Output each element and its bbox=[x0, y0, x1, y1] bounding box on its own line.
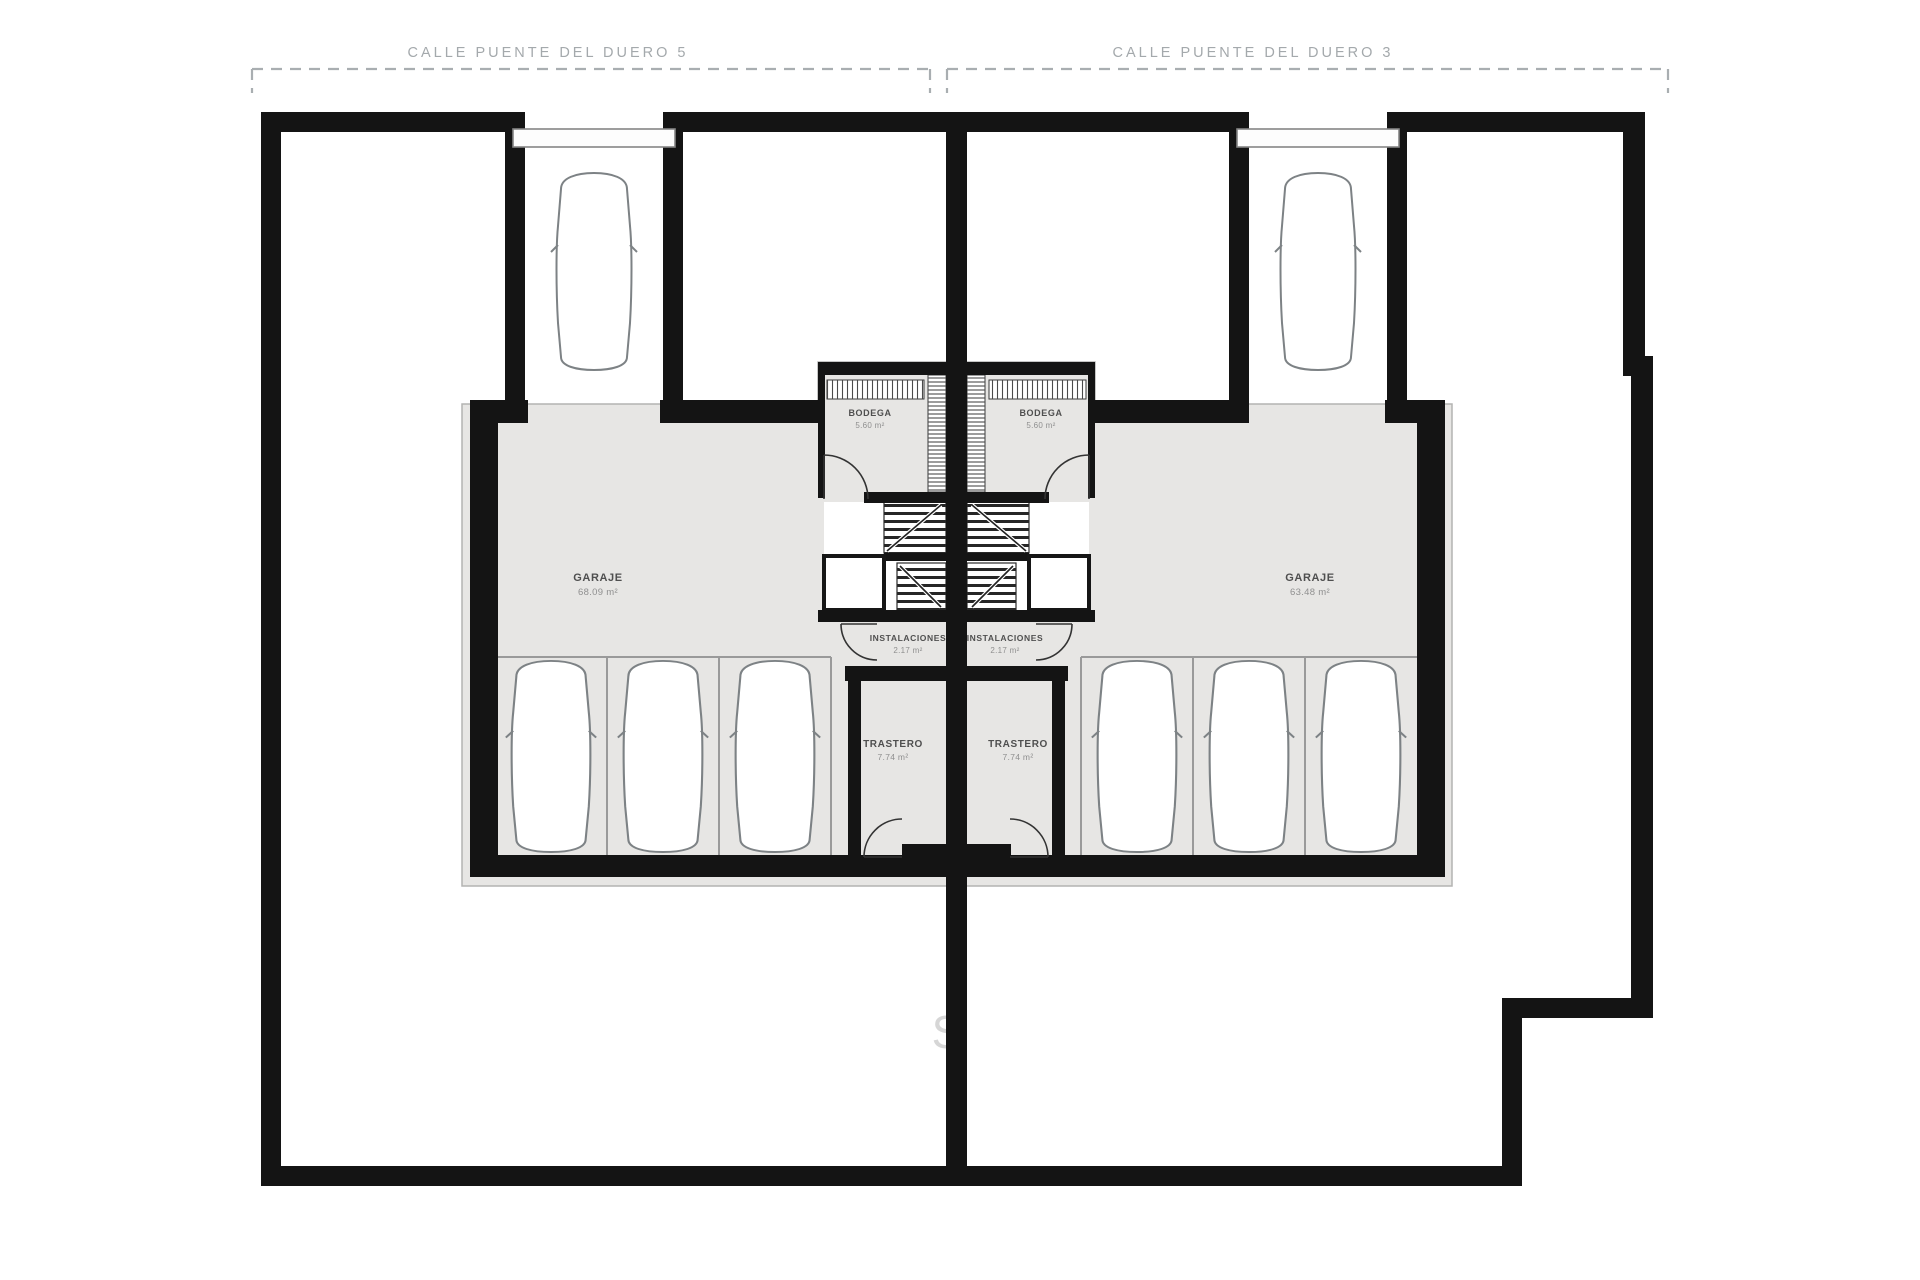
car-parking-right-3 bbox=[1316, 661, 1406, 852]
instalaciones-right-area: 2.17 m² bbox=[990, 646, 1019, 655]
core-wall-bottom bbox=[818, 610, 1095, 622]
shaft-right-hatch bbox=[967, 375, 985, 492]
stair-landing-wall-right bbox=[967, 553, 1029, 561]
bodega-right-label: BODEGA bbox=[1019, 408, 1062, 418]
car-parking-left-3 bbox=[730, 661, 820, 852]
trastero-bottom-wall-left bbox=[902, 844, 946, 857]
floor-plan-drawing: CALLE PUENTE DEL DUERO 5 CALLE PUENTE DE… bbox=[0, 0, 1920, 1280]
garage-wall-east bbox=[1417, 400, 1445, 877]
garage-wall-north-1 bbox=[470, 400, 528, 423]
core-wall-top bbox=[818, 362, 1095, 375]
garage-wall-north-2 bbox=[660, 400, 825, 423]
driveway-wall-left-b bbox=[663, 112, 683, 404]
bodega-bottom-wall-right bbox=[967, 492, 1049, 503]
trastero-bottom-wall-right bbox=[967, 844, 1011, 857]
instalaciones-bottom-wall-right bbox=[967, 666, 1068, 681]
car-parking-left-2 bbox=[618, 661, 708, 852]
instalaciones-left-area: 2.17 m² bbox=[893, 646, 922, 655]
driveway-wall-left-a bbox=[505, 112, 525, 404]
trastero-right-label: TRASTERO bbox=[988, 739, 1048, 750]
garaje-left-area: 68.09 m² bbox=[578, 587, 618, 598]
driveway-wall-right-b bbox=[1387, 112, 1407, 404]
driveway-wall-right-a bbox=[1229, 112, 1249, 404]
car-parking-right-1 bbox=[1092, 661, 1182, 852]
garaje-right-area: 63.48 m² bbox=[1290, 587, 1330, 598]
wardrobe-strip-right-hatch bbox=[989, 380, 1086, 399]
car-driveway-right bbox=[1275, 173, 1361, 370]
under-stair-room-right bbox=[1029, 556, 1089, 610]
shaft-left-hatch bbox=[928, 375, 946, 492]
garaje-right-label: GARAJE bbox=[1285, 572, 1334, 584]
bodega-left-label: BODEGA bbox=[848, 408, 891, 418]
stair-landing-wall-left bbox=[884, 553, 946, 561]
trastero-side-wall-right bbox=[1052, 681, 1065, 857]
wardrobe-strip-left-hatch bbox=[827, 380, 924, 399]
under-stair-room-left bbox=[824, 556, 884, 610]
garage-wall-south bbox=[470, 855, 1445, 877]
garaje-left-label: GARAJE bbox=[573, 572, 622, 584]
trastero-left-area: 7.74 m² bbox=[878, 752, 909, 762]
garage-wall-north-3 bbox=[1088, 400, 1249, 423]
floor-plan-page: CALLE PUENTE DEL DUERO 5 CALLE PUENTE DE… bbox=[0, 0, 1920, 1280]
instalaciones-right-label: INSTALACIONES bbox=[967, 633, 1044, 643]
party-wall bbox=[946, 112, 967, 1166]
trastero-right-area: 7.74 m² bbox=[1003, 752, 1034, 762]
car-parking-right-2 bbox=[1204, 661, 1294, 852]
instalaciones-bottom-wall-left bbox=[845, 666, 946, 681]
garage-door-left bbox=[513, 129, 675, 147]
bodega-bottom-wall-left bbox=[864, 492, 946, 503]
car-driveway-left bbox=[551, 173, 637, 370]
car-parking-left-1 bbox=[506, 661, 596, 852]
street-label-left: CALLE PUENTE DEL DUERO 5 bbox=[408, 45, 689, 61]
trastero-side-wall-left bbox=[848, 681, 861, 857]
instalaciones-left-label: INSTALACIONES bbox=[870, 633, 947, 643]
street-label-right: CALLE PUENTE DEL DUERO 3 bbox=[1113, 45, 1394, 61]
trastero-left-label: TRASTERO bbox=[863, 739, 923, 750]
bodega-right-area: 5.60 m² bbox=[1026, 421, 1055, 430]
garage-door-right bbox=[1237, 129, 1399, 147]
garage-wall-north-4 bbox=[1385, 400, 1445, 423]
bodega-left-area: 5.60 m² bbox=[855, 421, 884, 430]
garage-wall-west bbox=[470, 400, 498, 877]
